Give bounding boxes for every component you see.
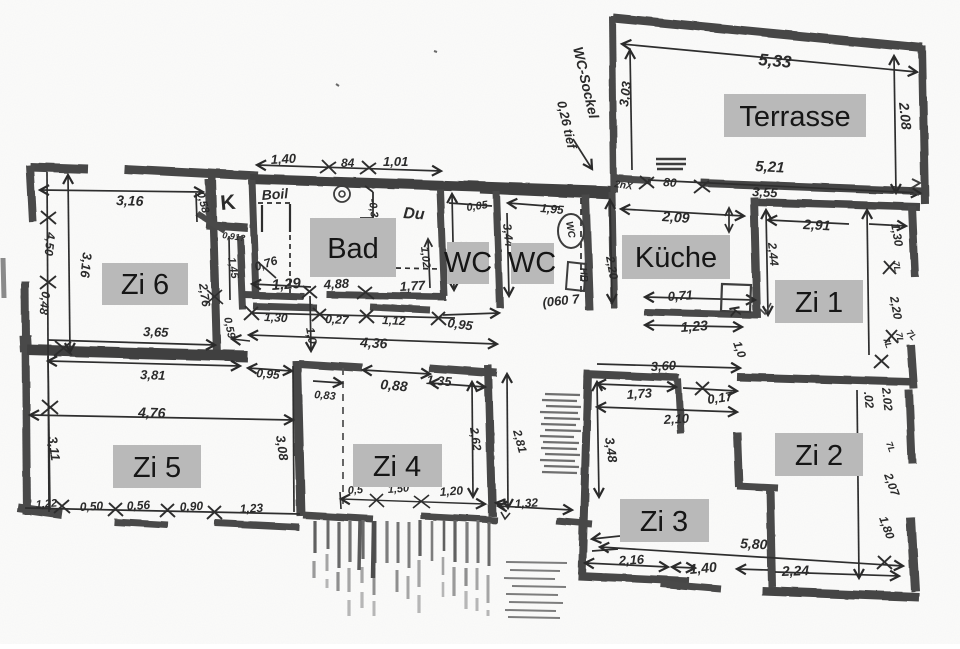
- svg-text:1,23: 1,23: [680, 317, 709, 335]
- svg-text:1,32: 1,32: [514, 495, 539, 511]
- svg-text:2,16: 2,16: [617, 552, 645, 568]
- svg-text:0,56: 0,56: [126, 498, 150, 513]
- svg-text:HB: HB: [577, 267, 589, 283]
- svg-text:1,12: 1,12: [382, 313, 406, 328]
- svg-text:Zi 4: Zi 4: [373, 451, 421, 483]
- svg-text:1,02: 1,02: [418, 246, 432, 269]
- svg-text:2,09: 2,09: [661, 208, 691, 226]
- svg-text:0,50: 0,50: [79, 499, 103, 514]
- svg-text:3,03: 3,03: [616, 80, 634, 108]
- svg-text:3,55: 3,55: [752, 184, 779, 200]
- svg-text:1,40: 1,40: [689, 559, 718, 577]
- svg-text:3,65: 3,65: [143, 324, 170, 340]
- svg-text:4,76: 4,76: [137, 404, 166, 421]
- svg-text:4,36: 4,36: [359, 334, 388, 351]
- svg-text:4,88: 4,88: [322, 276, 350, 292]
- svg-text:0,27: 0,27: [325, 312, 350, 327]
- svg-text:84: 84: [341, 156, 355, 170]
- svg-text:Zi 3: Zi 3: [640, 506, 688, 538]
- svg-text:1,95: 1,95: [540, 201, 565, 217]
- svg-text:-0,3: -0,3: [366, 198, 380, 218]
- svg-text:Du: Du: [403, 205, 426, 223]
- svg-text:0,88: 0,88: [380, 376, 409, 394]
- svg-text:0,90: 0,90: [179, 499, 203, 514]
- svg-text:0,48: 0,48: [37, 291, 53, 316]
- svg-text:5,21: 5,21: [755, 158, 785, 177]
- svg-text:4,50: 4,50: [42, 231, 59, 257]
- svg-text:1,35: 1,35: [426, 372, 453, 389]
- svg-text:.02: .02: [861, 391, 877, 409]
- svg-text:1,23: 1,23: [239, 501, 263, 516]
- svg-text:2.08: 2.08: [896, 101, 915, 131]
- svg-text:Bad: Bad: [327, 233, 379, 265]
- svg-text:5,33: 5,33: [758, 50, 793, 72]
- svg-text:1,20: 1,20: [439, 483, 464, 499]
- svg-text:80: 80: [663, 175, 678, 190]
- svg-text:Zi 5: Zi 5: [133, 452, 181, 484]
- svg-text:1,29: 1,29: [271, 275, 302, 294]
- svg-text:K: K: [219, 191, 236, 215]
- svg-text:3,60: 3,60: [650, 358, 677, 374]
- svg-text:2,91: 2,91: [802, 216, 831, 233]
- svg-text:5,80: 5,80: [740, 535, 768, 552]
- svg-text:Zi 1: Zi 1: [795, 287, 843, 319]
- svg-text:1,40: 1,40: [270, 151, 297, 167]
- svg-text:0,71: 0,71: [667, 287, 693, 304]
- svg-text:3,16: 3,16: [116, 192, 144, 209]
- svg-text:1,77: 1,77: [399, 278, 426, 294]
- svg-text:2,10: 2,10: [662, 411, 690, 427]
- svg-text:Boil: Boil: [261, 185, 290, 203]
- svg-text:1,73: 1,73: [626, 385, 653, 402]
- svg-text:0,95: 0,95: [256, 366, 281, 382]
- svg-text:3,16: 3,16: [77, 252, 95, 279]
- svg-text:Zi 6: Zi 6: [121, 269, 169, 301]
- svg-text:Zi 2: Zi 2: [795, 440, 843, 472]
- svg-text:3,81: 3,81: [140, 367, 166, 383]
- svg-text:7L: 7L: [894, 332, 906, 344]
- svg-text:1,30: 1,30: [264, 310, 288, 325]
- svg-text:WC: WC: [508, 247, 556, 279]
- svg-text:1,01: 1,01: [383, 154, 408, 169]
- svg-text:2.02: 2.02: [879, 386, 896, 412]
- svg-text:0,83: 0,83: [314, 389, 336, 403]
- svg-text:Terrasse: Terrasse: [739, 101, 850, 133]
- svg-text:1,0: 1,0: [303, 326, 320, 345]
- svg-text:1,22: 1,22: [35, 498, 57, 511]
- svg-text:Küche: Küche: [635, 242, 717, 274]
- svg-text:WC: WC: [444, 247, 492, 279]
- svg-text:2,44: 2,44: [765, 241, 782, 267]
- svg-text:2,24: 2,24: [781, 562, 810, 579]
- svg-text:7L: 7L: [891, 261, 903, 273]
